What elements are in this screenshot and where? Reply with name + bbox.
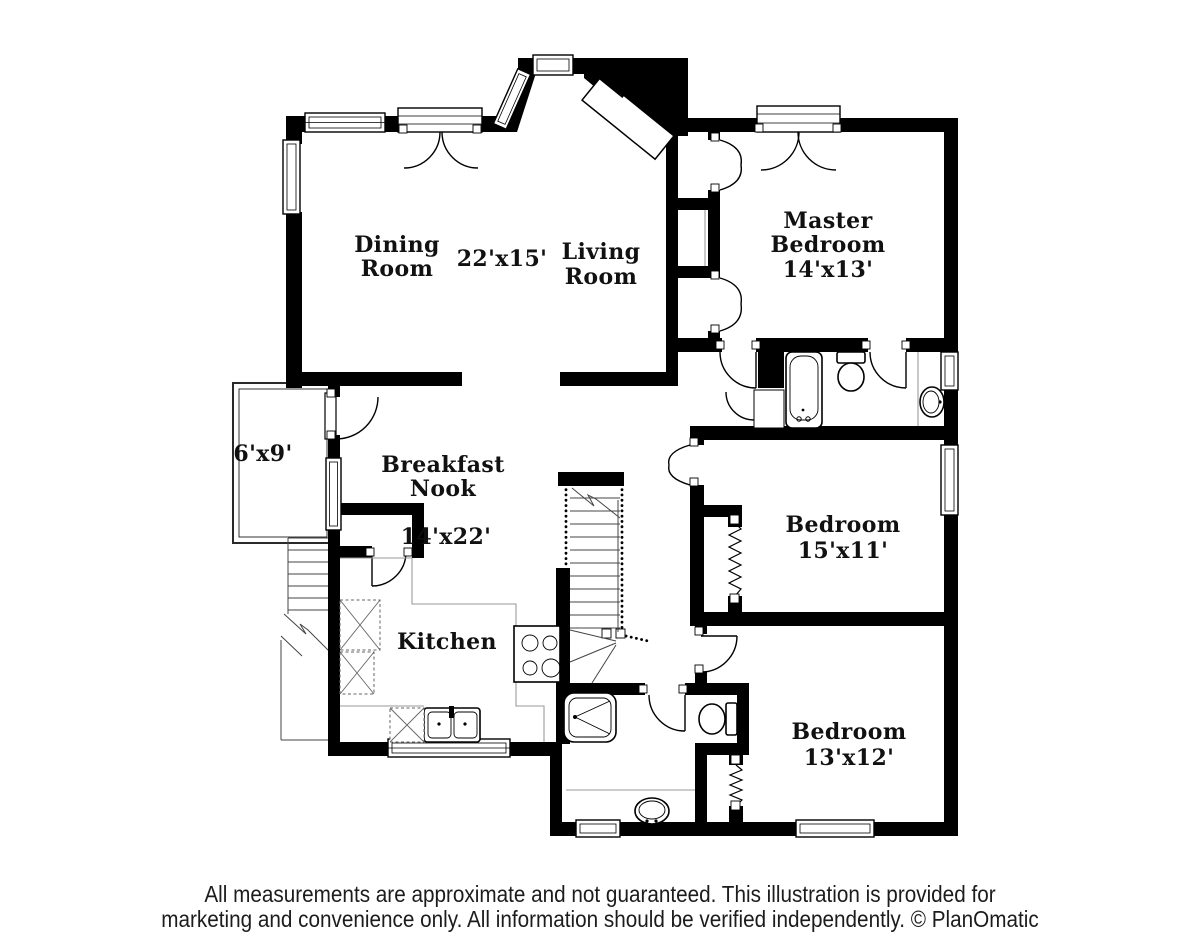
nook-west-window (326, 458, 341, 530)
label-deck-dims: 6'x9' (233, 441, 292, 467)
entry-top-window (533, 55, 573, 75)
bedroom1-right-window (941, 445, 958, 515)
label-nook-1: Breakfast (381, 452, 505, 478)
label-bedroom2: Bedroom (792, 719, 907, 745)
staircase (566, 479, 648, 683)
masterbath-right-window (941, 352, 958, 390)
bath2-bottom-window (576, 820, 620, 837)
shower (564, 693, 616, 742)
doors (325, 74, 906, 806)
master-closet-door-2 (720, 278, 741, 331)
label-master-1: Master (783, 208, 872, 234)
deck-stairs (281, 538, 330, 740)
base-cabinets (340, 600, 424, 742)
dining-left-window (283, 140, 300, 214)
range-stove (514, 626, 560, 682)
bedroom2-door (701, 636, 737, 672)
label-dining-living-dims: 22'x15' (457, 246, 548, 272)
pantry-door (372, 552, 406, 586)
vanity-sink-master-bath (918, 352, 944, 426)
label-living-room-1: Living (562, 239, 641, 265)
linen-closet-door (726, 390, 784, 428)
disclaimer-line-2: marketing and convenience only. All info… (60, 907, 1140, 932)
master-closet-door-1 (720, 140, 741, 190)
label-master-2: Bedroom (771, 232, 886, 258)
label-kitchen: Kitchen (397, 629, 497, 655)
label-bedroom1: Bedroom (786, 512, 901, 538)
label-nook-dims: 14'x22' (401, 524, 492, 550)
disclaimer-line-1: All measurements are approximate and not… (60, 882, 1140, 907)
label-nook-2: Nook (410, 476, 477, 502)
bedroom2-bottom-window (796, 820, 874, 837)
label-living-room-2: Room (565, 264, 638, 290)
vanity-sink-lower-bath (566, 790, 695, 824)
bath2-door (649, 695, 685, 731)
floor-plan-svg: Dining Room 22'x15' Living Room Master B… (0, 0, 1200, 945)
bedroom1-door (669, 445, 690, 485)
master-french-door (757, 106, 840, 170)
label-dining-room-1: Dining (354, 232, 440, 258)
kitchen-sink (424, 706, 480, 742)
toilet-master-bath (837, 352, 865, 391)
toilet-lower-bath (699, 703, 737, 735)
floor-plan-page: { "rooms": { "dining": { "line1": "Dinin… (0, 0, 1200, 945)
label-bedroom1-dims: 15'x11' (798, 538, 889, 564)
label-bedroom2-dims: 13'x12' (804, 745, 895, 771)
label-dining-room-2: Room (361, 256, 434, 282)
dining-top-window (305, 113, 385, 132)
master-entry-door (720, 352, 756, 388)
label-master-dims: 14'x13' (783, 257, 874, 283)
disclaimer: All measurements are approximate and not… (60, 882, 1140, 932)
dining-french-door (398, 108, 482, 168)
bathtub (786, 352, 822, 428)
master-bath-door (870, 352, 906, 388)
